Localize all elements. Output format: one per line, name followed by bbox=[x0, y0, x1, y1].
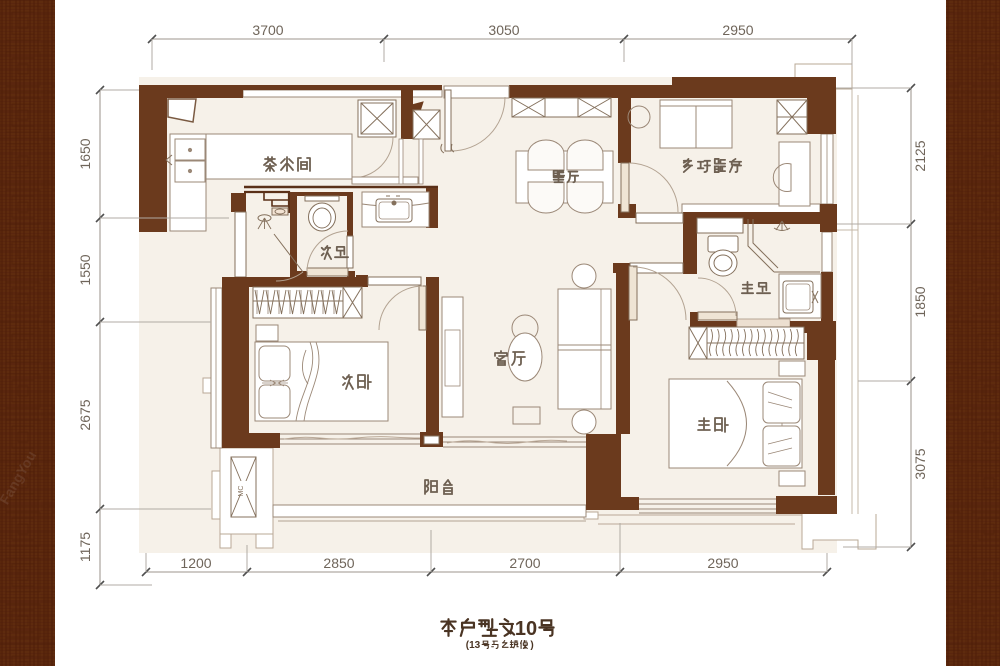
svg-text:2125: 2125 bbox=[912, 140, 928, 171]
svg-text:2950: 2950 bbox=[707, 555, 738, 571]
svg-text:3075: 3075 bbox=[912, 448, 928, 479]
svg-text:(13: (13 bbox=[466, 640, 481, 651]
svg-text:3050: 3050 bbox=[488, 22, 519, 38]
svg-text:1650: 1650 bbox=[77, 138, 93, 169]
svg-text:1850: 1850 bbox=[912, 286, 928, 317]
svg-text:1550: 1550 bbox=[77, 254, 93, 285]
svg-text:10: 10 bbox=[515, 618, 537, 640]
svg-text:3700: 3700 bbox=[252, 22, 283, 38]
svg-text:1175: 1175 bbox=[77, 532, 93, 562]
svg-text:): ) bbox=[530, 640, 533, 651]
svg-text:2700: 2700 bbox=[509, 555, 540, 571]
svg-text:MC: MC bbox=[238, 486, 245, 497]
svg-text:2950: 2950 bbox=[722, 22, 753, 38]
svg-text:1200: 1200 bbox=[180, 555, 211, 571]
svg-text:2850: 2850 bbox=[323, 555, 354, 571]
svg-text:2675: 2675 bbox=[77, 399, 93, 430]
